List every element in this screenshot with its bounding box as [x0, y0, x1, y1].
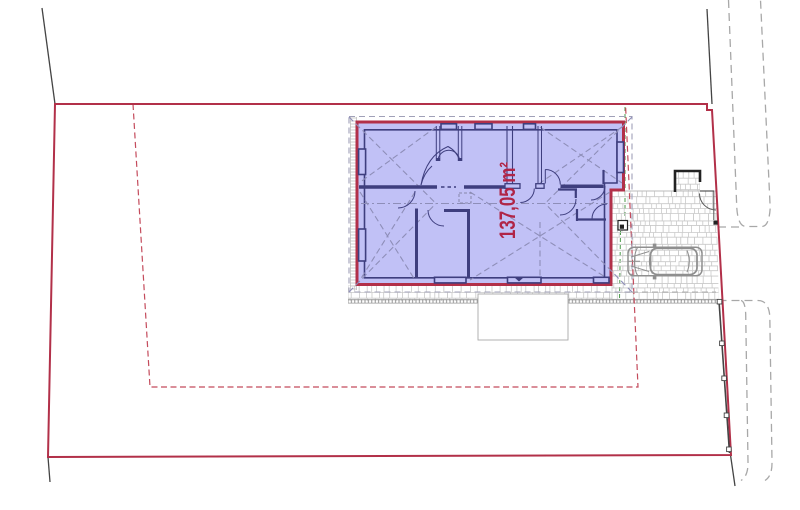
svg-text:137,05 m²: 137,05 m²: [495, 162, 520, 239]
